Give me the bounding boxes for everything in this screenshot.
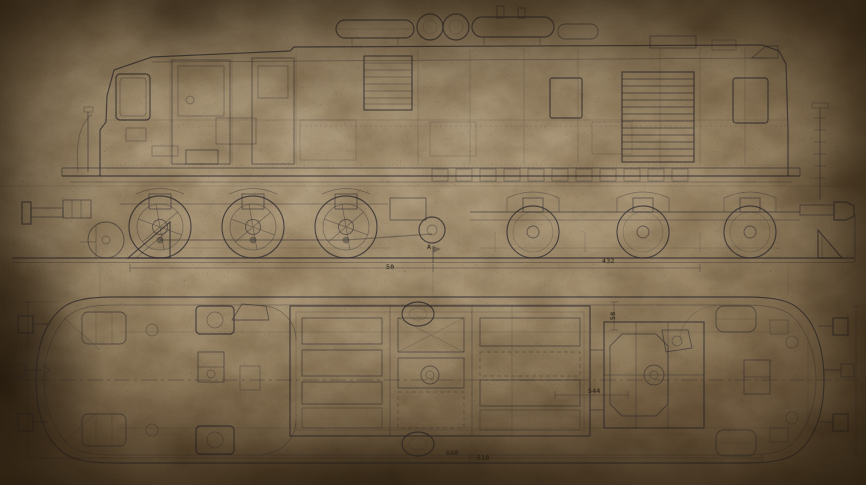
plan-view: [6, 297, 860, 463]
door-swing-arc: [262, 420, 296, 454]
windows-and-vents: [116, 56, 768, 164]
aged-paper-background: A 432 50 544 58 680 510: [0, 0, 866, 485]
section-a-flag: [433, 246, 441, 253]
elevation-dimension-lines: [130, 246, 700, 272]
plan-transmission: [590, 322, 704, 428]
side-elevation-view: [0, 6, 866, 296]
jackshaft: [346, 198, 445, 243]
driving-wheels-left: [129, 189, 377, 259]
bogie-wheels-right: [470, 192, 800, 258]
locomotive-blueprint-drawing: [0, 0, 866, 485]
underframe: [62, 168, 800, 182]
plan-cab-rear: [680, 306, 808, 456]
roof-equipment: [77, 6, 778, 172]
plan-engine-block: [290, 306, 590, 436]
underframe-boxes: [432, 169, 688, 181]
running-gear: [88, 189, 800, 259]
plan-cab-front: [64, 302, 434, 456]
plan-dimension-lines: [24, 302, 860, 462]
rear-buffer-and-pilot: [800, 103, 855, 262]
roof-horn: [752, 46, 778, 58]
body-detail-panels: [126, 96, 632, 164]
front-buffer-and-pilot: [22, 200, 170, 258]
